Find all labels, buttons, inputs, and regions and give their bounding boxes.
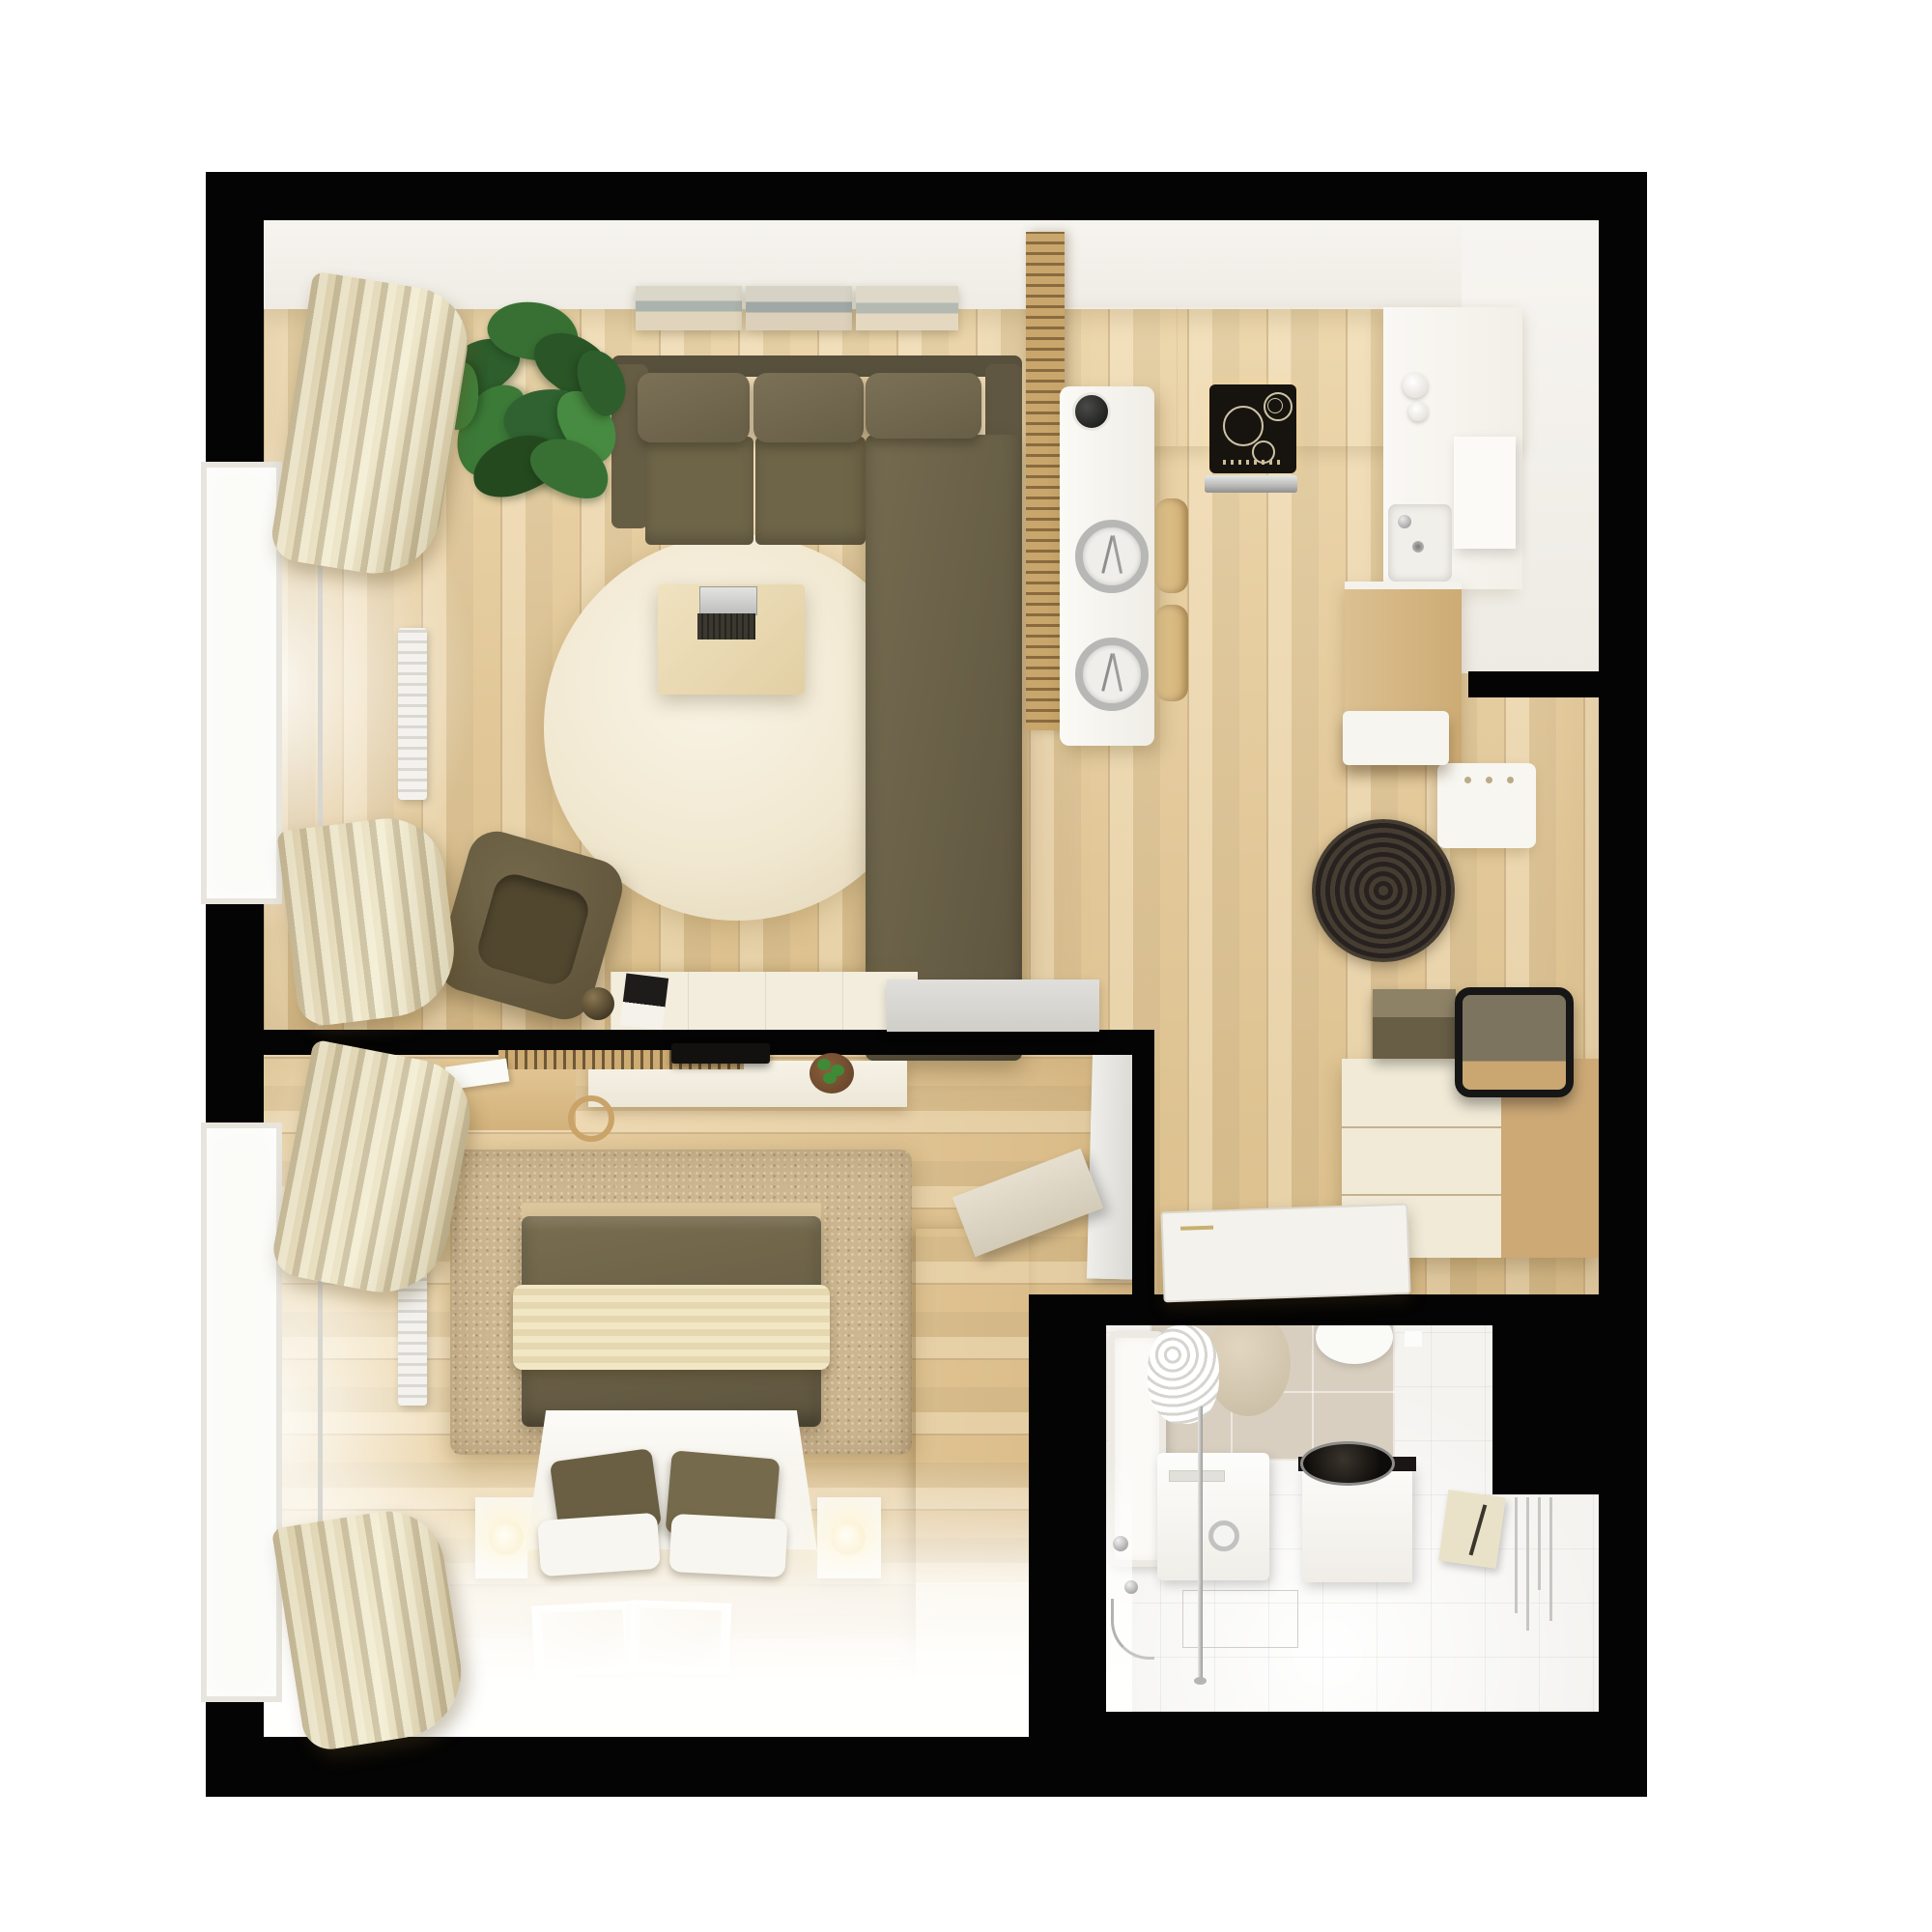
slat-partition: [1026, 232, 1065, 730]
fork-icon: [1101, 535, 1114, 574]
washer-dial: [1208, 1520, 1239, 1551]
grey-console-panel: [887, 980, 1099, 1032]
picture-art: [639, 1608, 722, 1667]
shower-curtain: [1148, 1325, 1219, 1424]
laptop-keyboard: [697, 613, 755, 639]
radiator-tube: [1549, 1497, 1552, 1621]
tub-faucet: [1124, 1580, 1138, 1594]
ball-lamp: [582, 987, 614, 1020]
bed-pillow: [669, 1514, 788, 1577]
coat-rack-panel: [1437, 763, 1536, 848]
drawer-seam: [1342, 1126, 1501, 1128]
leaf: [823, 1072, 837, 1084]
bed-throw: [513, 1285, 830, 1370]
towel-radiator: [1507, 1497, 1565, 1634]
nook-cabinet: [1454, 437, 1516, 549]
bar-stool: [1155, 605, 1188, 701]
wall-art-panel: [636, 286, 742, 330]
place-setting: [1075, 520, 1149, 593]
picture-art: [542, 1609, 626, 1669]
place-setting: [1075, 638, 1149, 711]
wall-bathroom-left: [1029, 1294, 1106, 1737]
wall-top: [206, 172, 1647, 220]
tub-faucet: [1113, 1536, 1128, 1551]
hob-controls: [1223, 460, 1283, 465]
magazine: [620, 974, 668, 1031]
wall-right: [1599, 172, 1647, 1797]
bar-stool: [1155, 498, 1188, 593]
sink-drain: [1412, 541, 1424, 553]
curtain-drape: [276, 812, 462, 1029]
sofa-back-cushion: [866, 373, 981, 439]
armchair-seat: [473, 869, 593, 989]
sink-faucet: [1398, 515, 1411, 528]
towel-slot: [1469, 1504, 1488, 1555]
towel-box: [1438, 1490, 1506, 1569]
drawer-seam: [1342, 1194, 1501, 1196]
fork-icon: [1101, 653, 1114, 692]
knife-icon: [1112, 535, 1122, 574]
leaning-mirror: [1455, 987, 1574, 1097]
laptop-screen: [699, 586, 757, 615]
floor-plan-render: [0, 0, 1932, 1932]
bowl: [1408, 402, 1428, 421]
radiator-tube: [1538, 1497, 1541, 1590]
tv: [671, 1043, 770, 1064]
washer-drawer: [1169, 1470, 1225, 1482]
sofa-seat-cushion: [755, 437, 866, 545]
window-living: [201, 462, 282, 904]
wall-art-panel: [746, 286, 852, 330]
bed-pillow: [537, 1513, 661, 1577]
leaf: [817, 1059, 831, 1070]
open-door: [1087, 1052, 1139, 1279]
round-dark-rug: [1312, 819, 1455, 962]
wardrobe: [916, 1229, 1029, 1694]
sofa-seat-cushion: [645, 437, 753, 545]
floor-picture: [531, 1601, 636, 1677]
sofa-back-cushion: [638, 373, 750, 442]
sphere-lamp: [489, 1520, 524, 1555]
storage-box: [1373, 989, 1456, 1059]
induction-hob: [1209, 384, 1296, 473]
shoe-bench: [1343, 711, 1449, 765]
sphere-lamp: [831, 1520, 866, 1555]
hook-icon: [1464, 777, 1471, 783]
wall-bathroom-top: [1029, 1294, 1599, 1325]
wall-hallway-step: [1468, 671, 1599, 697]
knife-icon: [1112, 653, 1122, 692]
floor-picture: [629, 1600, 732, 1675]
burner-ring: [1223, 406, 1264, 446]
wall-bottom-bathroom: [1029, 1712, 1647, 1797]
sofa-back-cushion: [753, 373, 864, 442]
radiator: [398, 628, 427, 800]
door-handle: [1180, 1226, 1213, 1231]
radiator-tube: [1515, 1497, 1518, 1613]
wall-art-panel: [856, 286, 958, 330]
flush-plate: [1405, 1331, 1422, 1347]
coffee-maker: [1072, 392, 1111, 431]
wall-bedroom-hallway: [1132, 1051, 1154, 1298]
oven-handle: [1205, 475, 1297, 493]
console-plant: [810, 1053, 854, 1094]
sofa-chaise: [866, 435, 1022, 1061]
window-bedroom: [201, 1122, 282, 1702]
burner-ring: [1267, 398, 1283, 413]
desk-chair: [568, 1095, 614, 1142]
hook-icon: [1507, 777, 1514, 783]
bowl: [1403, 373, 1428, 398]
pole-base: [1194, 1677, 1207, 1685]
radiator-tube: [1526, 1497, 1529, 1631]
door-leaf-flat: [1160, 1204, 1410, 1303]
chrome-pole: [1198, 1406, 1203, 1681]
hook-icon: [1486, 777, 1492, 783]
vessel-basin: [1300, 1441, 1395, 1486]
wall-bathroom-corner: [1492, 1325, 1599, 1494]
